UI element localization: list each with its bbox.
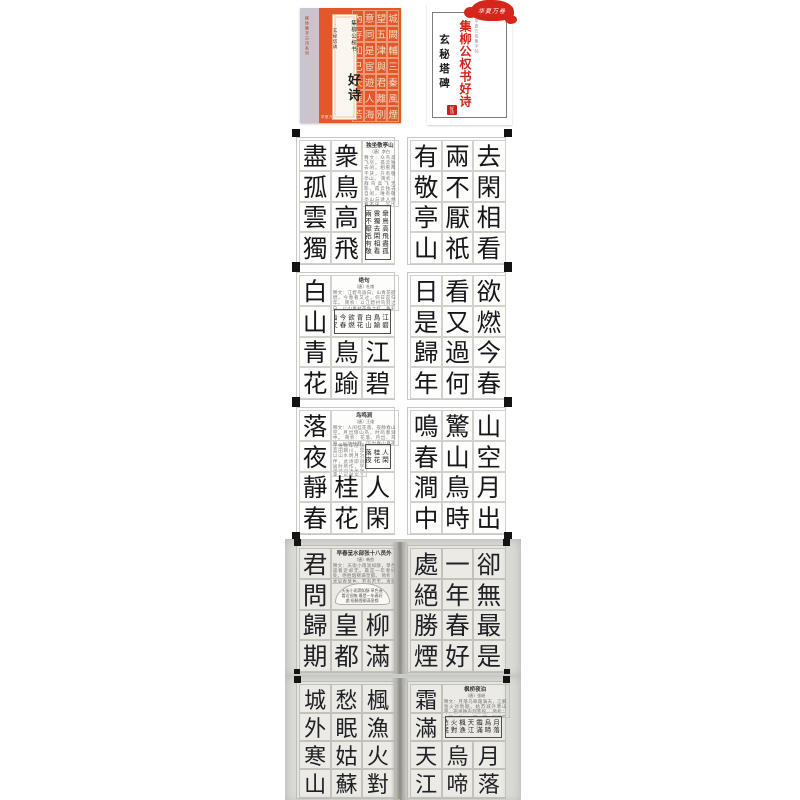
cover-grid-character: 城	[387, 10, 399, 26]
spread-5-right-page: 霜滿天江枫桥夜泊〔唐〕张继释文：月落乌啼霜满天，江枫渔火对愁眠。姑苏城外寒山寺，…	[407, 681, 506, 799]
cover-grid-character: 同	[364, 26, 376, 42]
calligraphy-character: 靜	[299, 471, 332, 504]
calligraphy-character: 日	[410, 275, 443, 308]
small-calligraphy-frame: 月落烏啼霜滿天江楓漁火對愁眠姑蘇城外寒山寺夜半鐘聲到客船	[441, 712, 506, 742]
calligraphy-character: 滿	[410, 712, 443, 742]
calligraphy-character: 眠	[330, 712, 363, 742]
calligraphy-character: 落	[472, 768, 505, 798]
title-page-stele-title: 玄秘塔碑	[436, 34, 451, 112]
poem-author: 〔唐〕张继	[444, 693, 507, 698]
fan-calligraphy-image: 天街小雨潤如酥 草色遙看近卻無 最是一年春好處 絕勝煙柳滿皇都	[330, 578, 395, 611]
spread-1-right-page: 有敬亭山兩不厭祇去閑相看	[407, 137, 506, 265]
cover-grid-character: 闕	[387, 26, 399, 42]
calligraphy-character: 寒	[299, 740, 332, 770]
calligraphy-character: 漁	[361, 712, 394, 742]
calligraphy-character: 蘇	[330, 768, 363, 798]
calligraphy-character: 鳥	[441, 471, 474, 504]
small-calligraphy-text: 人閑桂花落夜靜春山空月出驚山鳥時鳴春澗中	[365, 444, 390, 469]
calligraphy-character: 柳	[361, 609, 394, 642]
calligraphy-spread-4: 君問歸期早春呈水部张十八员外〔唐〕韩愈释文：天街小雨润如酥，草色遥看近却无。最是…	[292, 545, 512, 671]
spread-3-left-page: 落夜靜春鸟鸣涧〔唐〕王维释文：人闲桂花落，夜静春山空。月出惊山鸟，时鸣春涧中。 …	[296, 407, 395, 535]
book-spine-shadow	[391, 678, 409, 800]
calligraphy-character: 鳥	[330, 336, 363, 369]
cover-left-strip: 柳体集字古诗系列	[300, 8, 319, 123]
calligraphy-character: 山	[299, 305, 332, 338]
calligraphy-character: 欲	[472, 275, 505, 308]
cover-grid-character: 宦	[364, 58, 376, 74]
calligraphy-character: 兩	[441, 140, 474, 173]
calligraphy-character: 月	[472, 471, 505, 504]
calligraphy-character: 空	[472, 440, 505, 473]
spread-2-left-page: 白山青花绝句〔唐〕杜甫释文：江碧鸟逾白，山青花欲燃。今春看又过，何日是归年。 简…	[296, 272, 395, 400]
calligraphy-character: 城	[299, 684, 332, 714]
calligraphy-character: 霜	[410, 684, 443, 714]
calligraphy-character: 外	[299, 712, 332, 742]
spread-5-left-page: 城外寒山愁眠姑蘇楓漁火對	[296, 681, 395, 799]
calligraphy-character: 敬	[410, 170, 443, 203]
calligraphy-character: 啼	[441, 768, 474, 798]
book-product-image: 柳体集字古诗系列 城闕輔三秦風煙望五津與君離別意同是宦遊人海內存知己天涯若 集柳…	[0, 0, 800, 800]
calligraphy-character: 春	[472, 366, 505, 399]
calligraphy-character: 獨	[299, 231, 332, 264]
calligraphy-character: 飛	[330, 231, 363, 264]
calligraphy-character: 不	[441, 170, 474, 203]
calligraphy-character: 春	[441, 609, 474, 642]
calligraphy-character: 愁	[330, 684, 363, 714]
calligraphy-character: 烏	[441, 740, 474, 770]
calligraphy-character: 對	[361, 768, 394, 798]
calligraphy-character: 過	[441, 336, 474, 369]
calligraphy-character: 看	[441, 275, 474, 308]
calligraphy-character: 時	[441, 501, 474, 534]
small-calligraphy-frame: 江碧鳥踰白山青花欲燃今春看又過何日是歸年	[330, 305, 395, 338]
cover-grid-character: 海	[364, 106, 376, 122]
calligraphy-character: 人	[361, 471, 394, 504]
calligraphy-character: 山	[441, 440, 474, 473]
cover-grid-character: 離	[376, 90, 388, 106]
calligraphy-character: 春	[410, 440, 443, 473]
calligraphy-character: 是	[472, 639, 505, 672]
cover-grid-character: 君	[376, 74, 388, 90]
calligraphy-character: 歸	[410, 336, 443, 369]
calligraphy-character: 雲	[299, 201, 332, 234]
calligraphy-spread-3: 落夜靜春鸟鸣涧〔唐〕王维释文：人闲桂花落，夜静春山空。月出惊山鸟，时鸣春涧中。 …	[292, 407, 512, 533]
publisher-logo-text: 华夏万卷	[478, 6, 506, 15]
calligraphy-character: 歸	[299, 609, 332, 642]
calligraphy-character: 處	[410, 548, 443, 581]
cover-grid-character: 五	[376, 26, 388, 42]
calligraphy-character: 花	[330, 501, 363, 534]
calligraphy-character: 絕	[410, 578, 443, 611]
poem-author: 〔唐〕杜甫	[333, 284, 396, 289]
corner-clip	[504, 669, 510, 674]
small-calligraphy-frame: 衆鳥高飛盡孤雲獨去閑相看兩不厭祇有敬亭山	[361, 201, 394, 264]
calligraphy-character: 卻	[472, 548, 505, 581]
spread-3-right-page: 鳴春澗中驚山鳥時山空月出	[407, 407, 506, 535]
calligraphy-character: 最	[472, 609, 505, 642]
corner-clip	[504, 129, 512, 137]
calligraphy-character: 澗	[410, 471, 443, 504]
calligraphy-character: 是	[410, 305, 443, 338]
book-spine-shadow	[391, 542, 409, 674]
calligraphy-character: 高	[330, 201, 363, 234]
corner-clip	[294, 539, 301, 546]
calligraphy-character: 楓	[361, 684, 394, 714]
poem-author: 〔唐〕韩愈	[333, 557, 396, 562]
cover-grid-character: 秦	[387, 74, 399, 90]
corner-clip	[504, 399, 512, 407]
calligraphy-character: 出	[472, 501, 505, 534]
calligraphy-character: 有	[410, 140, 443, 173]
calligraphy-character: 滿	[361, 639, 394, 672]
cover-grid-character: 煙	[387, 106, 399, 122]
calligraphy-character: 鳴	[410, 410, 443, 443]
cover-grid-character: 三	[387, 58, 399, 74]
title-page-series-text: 华夏万卷集字帖	[474, 19, 480, 65]
seal-text: 好诗	[450, 106, 454, 114]
calligraphy-character: 山	[410, 231, 443, 264]
calligraphy-character: 春	[299, 501, 332, 534]
calligraphy-character: 白	[299, 275, 332, 308]
calligraphy-character: 閑	[361, 501, 394, 534]
calligraphy-character: 厭	[441, 201, 474, 234]
corner-clip	[294, 676, 301, 683]
calligraphy-character: 江	[410, 768, 443, 798]
calligraphy-character: 落	[299, 410, 332, 443]
calligraphy-character: 都	[330, 639, 363, 672]
calligraphy-character: 去	[472, 140, 505, 173]
spread-4-right-page: 處絕勝煙一年春好卻無最是	[407, 545, 506, 673]
corner-clip	[294, 669, 300, 674]
cover-grid-character: 與	[376, 58, 388, 74]
cover-publisher-text: 华夏万卷	[321, 115, 337, 120]
calligraphy-character: 驚	[441, 410, 474, 443]
cover-subtitle: ·玄秘塔碑	[333, 22, 338, 50]
calligraphy-character: 皇	[330, 609, 363, 642]
cover-title-large: 好诗	[346, 73, 361, 103]
poem-author: 〔唐〕李白	[364, 149, 395, 154]
calligraphy-character: 孤	[299, 170, 332, 203]
calligraphy-character: 問	[299, 578, 332, 611]
calligraphy-character: 盡	[299, 140, 332, 173]
calligraphy-character: 君	[299, 548, 332, 581]
calligraphy-character: 江	[361, 336, 394, 369]
corner-clip	[503, 676, 510, 683]
calligraphy-character: 天	[410, 740, 443, 770]
corner-clip	[504, 264, 512, 272]
corner-clip	[292, 399, 300, 407]
calligraphy-character: 姑	[330, 740, 363, 770]
calligraphy-character: 踰	[330, 366, 363, 399]
calligraphy-character: 勝	[410, 609, 443, 642]
poem-author: 〔唐〕王维	[333, 419, 396, 424]
cover-grid-character: 是	[364, 42, 376, 58]
cover-grid-character: 別	[376, 106, 388, 122]
calligraphy-character: 山	[472, 410, 505, 443]
cover-grid-character: 遊	[364, 74, 376, 90]
calligraphy-character: 夜	[299, 440, 332, 473]
publisher-logo-cloud: 华夏万卷	[470, 0, 514, 21]
fan-text: 天街小雨潤如酥 草色遙看近卻無 最是一年春好處 絕勝煙柳滿皇都	[336, 585, 389, 603]
calligraphy-character: 今	[472, 336, 505, 369]
calligraphy-character: 月	[472, 740, 505, 770]
calligraphy-character: 火	[361, 740, 394, 770]
cover-grid-character: 輔	[387, 42, 399, 58]
cover-series-text: 柳体集字古诗系列	[305, 16, 310, 96]
calligraphy-character: 祇	[441, 231, 474, 264]
cover-grid-character: 望	[376, 10, 388, 26]
calligraphy-character: 青	[299, 336, 332, 369]
spread-4-left-page: 君問歸期早春呈水部张十八员外〔唐〕韩愈释文：天街小雨润如酥，草色遥看近却无。最是…	[296, 545, 395, 673]
calligraphy-spread-2: 白山青花绝句〔唐〕杜甫释文：江碧鸟逾白，山青花欲燃。今春看又过，何日是归年。 简…	[292, 272, 512, 398]
corner-clip	[503, 539, 510, 546]
calligraphy-character: 期	[299, 639, 332, 672]
calligraphy-character: 看	[472, 231, 505, 264]
small-calligraphy-text: 月落烏啼霜滿天江楓漁火對愁眠姑蘇城外寒山寺夜半鐘聲到客船	[445, 716, 502, 738]
fan-shape: 天街小雨潤如酥 草色遙看近卻無 最是一年春好處 絕勝煙柳滿皇都	[335, 583, 390, 604]
calligraphy-character: 年	[410, 366, 443, 399]
small-calligraphy-text: 衆鳥高飛盡孤雲獨去閑相看兩不厭祇有敬亭山	[365, 205, 390, 260]
calligraphy-character: 無	[472, 578, 505, 611]
cover-grid-character: 意	[364, 10, 376, 26]
book-front-cover: 柳体集字古诗系列 城闕輔三秦風煙望五津與君離別意同是宦遊人海內存知己天涯若 集柳…	[300, 8, 401, 123]
poem-annotation-block: 独坐敬亭山〔唐〕李白释文：众鸟高飞尽，孤云独去闲。相看两不厌，只有敬亭山。 简析…	[361, 140, 398, 207]
corner-clip	[504, 532, 512, 539]
calligraphy-character: 鳥	[330, 170, 363, 203]
calligraphy-character: 山	[299, 768, 332, 798]
calligraphy-character: 中	[410, 501, 443, 534]
cover-title-small: 集柳公权书	[350, 20, 356, 53]
red-seal-stamp: 好诗	[447, 105, 457, 115]
calligraphy-character: 何	[441, 366, 474, 399]
calligraphy-character: 花	[299, 366, 332, 399]
calligraphy-character: 亭	[410, 201, 443, 234]
calligraphy-character: 桂	[330, 471, 363, 504]
calligraphy-character: 煙	[410, 639, 443, 672]
calligraphy-character: 相	[472, 201, 505, 234]
title-page-main-title: 集柳公权书好诗	[457, 20, 474, 112]
calligraphy-character: 好	[441, 639, 474, 672]
corner-clip	[292, 264, 300, 272]
cover-grid-character: 人	[364, 90, 376, 106]
calligraphy-spread-1: 盡孤雲獨衆鳥高飛独坐敬亭山〔唐〕李白释文：众鸟高飞尽，孤云独去闲。相看两不厌，只…	[292, 137, 512, 263]
calligraphy-character: 燃	[472, 305, 505, 338]
corner-clip	[292, 129, 300, 137]
calligraphy-character: 閑	[472, 170, 505, 203]
poem-note-text: 释文：众鸟高飞尽，孤云独去闲。相看两不厌，只有敬亭山。 简析：群鸟高飞无影，孤云…	[364, 155, 395, 207]
calligraphy-spread-5: 城外寒山愁眠姑蘇楓漁火對霜滿天江枫桥夜泊〔唐〕张继释文：月落乌啼霜满天，江枫渔火…	[292, 681, 512, 797]
calligraphy-character: 年	[441, 578, 474, 611]
cover-grid-character: 津	[376, 42, 388, 58]
book-title-page: 华夏万卷集字帖 集柳公权书好诗 玄秘塔碑 好诗 华夏万卷	[427, 4, 512, 125]
calligraphy-character: 又	[441, 305, 474, 338]
spread-2-right-page: 日是歸年看又過何欲燃今春	[407, 272, 506, 400]
small-calligraphy-text: 江碧鳥踰白山青花欲燃今春看又過何日是歸年	[334, 309, 391, 334]
cover-title-label: 集柳公权书 好诗 ·玄秘塔碑	[332, 14, 357, 120]
calligraphy-character: 衆	[330, 140, 363, 173]
cover-grid-character: 風	[387, 90, 399, 106]
small-calligraphy-frame: 人閑桂花落夜靜春山空月出驚山鳥時鳴春澗中	[361, 440, 394, 473]
corner-clip	[292, 532, 300, 539]
calligraphy-character: 一	[441, 548, 474, 581]
spread-1-left-page: 盡孤雲獨衆鳥高飛独坐敬亭山〔唐〕李白释文：众鸟高飞尽，孤云独去闲。相看两不厌，只…	[296, 137, 395, 265]
calligraphy-character: 碧	[361, 366, 394, 399]
